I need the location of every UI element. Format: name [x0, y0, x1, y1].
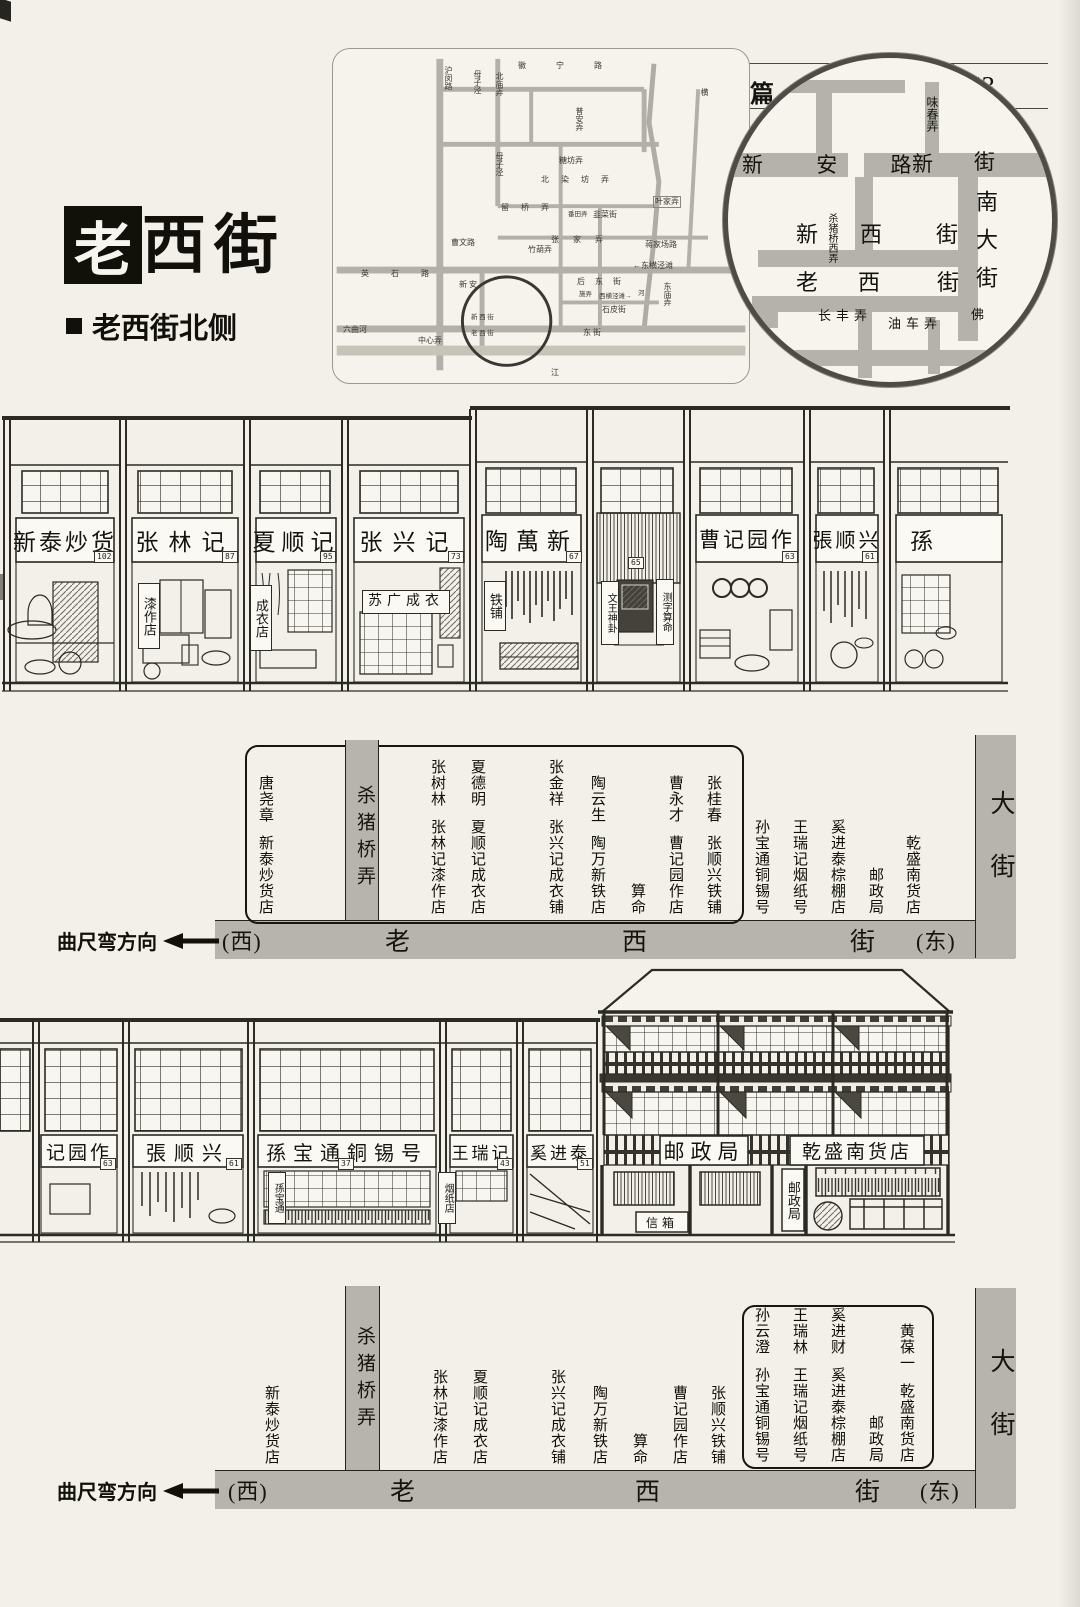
- shop-column: 张金祥张兴记成衣铺: [546, 759, 564, 915]
- house-number: 65: [628, 557, 644, 569]
- shop-board: 苏广成衣: [362, 590, 450, 614]
- shop-column: 夏德明夏顺记成衣店: [468, 759, 486, 915]
- shop-name: 夏顺记成衣店: [471, 1369, 487, 1465]
- shop-column: 陶万新铁店: [590, 1385, 608, 1465]
- shop-banner: 漆作店: [138, 583, 160, 649]
- direction-note: 曲尺弯方向: [57, 926, 219, 955]
- shop-column: 新泰炒货店: [262, 1385, 280, 1465]
- avenue-label: 大街: [982, 1348, 1018, 1474]
- shop-name: 张兴记成衣铺: [547, 819, 563, 915]
- street-char: 老: [385, 922, 411, 958]
- shop-column: 算命: [630, 1433, 648, 1465]
- shop-column: 张顺兴铁铺: [708, 1385, 726, 1465]
- road-label: 新 安 路: [742, 155, 936, 176]
- shop-name: 算命: [631, 1433, 647, 1465]
- shop-name: 孙宝通铜锡号: [753, 819, 769, 915]
- shop-name: 张兴记成衣铺: [549, 1369, 565, 1465]
- left-arrow-icon: [163, 933, 219, 949]
- street-label: 东庙弄: [663, 282, 671, 306]
- bullet-square-icon: [66, 318, 82, 334]
- street-label: 留 桥 弄: [501, 204, 554, 212]
- shop-column: 王瑞林王瑞记烟纸号: [790, 1307, 808, 1463]
- shop-banner: 成衣店: [250, 585, 272, 651]
- shop-name: 乾盛南货店: [898, 1383, 914, 1463]
- house-number: 43: [497, 1158, 513, 1170]
- magnifier-circle: 味春弄 新 安 路 新 街 南大街 新 杀猪桥西弄 西 街 老 西 街 长丰弄 …: [723, 53, 1057, 387]
- street-end-east: (东): [916, 924, 956, 956]
- road-label: 南大街: [974, 190, 996, 304]
- shop-column: 乾盛南货店: [903, 835, 921, 915]
- lane-label: 杀猪桥弄: [351, 1326, 378, 1434]
- street-label: 石皮街: [602, 306, 626, 314]
- shop-name: 张顺兴铁铺: [709, 1385, 725, 1465]
- road-label: 西: [858, 272, 880, 294]
- owner-name: 张树林: [429, 759, 445, 807]
- direction-text: 曲尺弯方向: [57, 926, 157, 955]
- road-label: 新: [796, 224, 818, 246]
- post-office-door-sign: 邮政局: [782, 1169, 804, 1231]
- road-label: 街: [936, 224, 958, 246]
- lane-label: 杀猪桥西弄: [826, 213, 836, 263]
- shop-column: 孙云澄孙宝通铜锡号: [752, 1307, 770, 1463]
- stall-sign: 测字算命: [656, 579, 674, 645]
- street-end-west: (西): [228, 1474, 268, 1506]
- house-number: 87: [222, 551, 238, 563]
- storefront-row-1: 新泰炒货 张林记 夏顺记 张兴记 陶萬新 曹记园作 張顺兴 孫 102 87 9…: [0, 405, 1080, 697]
- street-label: 中心弄: [418, 337, 442, 345]
- house-number: 95: [320, 551, 336, 563]
- house-number: 63: [100, 1158, 116, 1170]
- owner-name: 陶云生: [589, 775, 605, 823]
- house-number: 51: [577, 1158, 593, 1170]
- shop-column: 陶云生陶万新铁店: [588, 775, 606, 915]
- street-label: 番田弄: [568, 212, 588, 219]
- house-number: 102: [94, 551, 114, 563]
- street-band: [738, 312, 778, 328]
- street-label: 母子泾: [495, 152, 503, 176]
- street-label: 英 石 路: [361, 270, 439, 278]
- road-label: 老: [796, 272, 818, 294]
- road-label: 西: [860, 224, 882, 246]
- south-goods-sign: 乾盛南货店: [790, 1136, 924, 1165]
- street-char: 西: [622, 922, 648, 958]
- shop-column: 邮政局: [866, 867, 884, 915]
- scanned-book-page: { "header": { "section": "第二篇", "scroll_…: [0, 0, 1080, 1607]
- owner-name: 张金祥: [547, 759, 563, 807]
- shop-column: 曹永才曹记园作店: [666, 775, 684, 915]
- shop-name: 算命: [629, 883, 645, 915]
- street-label: 叶家弄: [653, 196, 681, 208]
- storefront-row-2: 记园作 張顺兴 孫宝通銅锡号 王瑞记 奚进泰 邮政局 乾盛南货店 信箱 邮政局 …: [0, 954, 1080, 1250]
- direction-text: 曲尺弯方向: [57, 1476, 157, 1505]
- shop-name: 奚进泰棕棚店: [829, 819, 845, 915]
- shop-column: 算命: [628, 883, 646, 915]
- title-rest: 西街: [142, 206, 286, 284]
- post-office-sign: 邮政局: [660, 1136, 748, 1165]
- shop-column: 唐尧章新泰炒货店: [256, 775, 274, 915]
- left-arrow-icon: [163, 1483, 219, 1499]
- street-label: 北 染 坊 弄: [541, 176, 614, 184]
- shop-column: 奚进财奚进泰棕棚店: [828, 1307, 846, 1463]
- shop-name: 张林记漆作店: [431, 1369, 447, 1465]
- street-label: 施弄: [579, 292, 592, 299]
- section-subtitle: 老西街北侧: [66, 305, 237, 347]
- title-boxed-char: 老: [64, 206, 142, 284]
- house-number: 63: [782, 551, 798, 563]
- street-char: 街: [855, 1472, 881, 1508]
- page-title: 老 西街: [64, 206, 286, 284]
- street-char: 西: [635, 1472, 661, 1508]
- shop-column: 王瑞记烟纸号: [790, 819, 808, 915]
- shop-name: 王瑞记烟纸号: [791, 819, 807, 915]
- house-number: 73: [448, 551, 464, 563]
- street-char: 老: [390, 1472, 416, 1508]
- street-label: 新 西 街: [471, 315, 494, 322]
- shop-column: 张林记漆作店: [430, 1369, 448, 1465]
- lane-label: 油车弄: [888, 317, 942, 330]
- street-label: 普安弄: [575, 107, 583, 131]
- shop-banner: 铁铺: [484, 581, 506, 631]
- street-label: 新 安: [459, 281, 477, 289]
- owner-name: 王瑞林: [791, 1307, 807, 1355]
- subtitle-text: 老西街北侧: [92, 305, 237, 347]
- road-label: 佛: [971, 308, 984, 321]
- street-label: 曹文路: [451, 239, 475, 247]
- street-band: [765, 80, 905, 93]
- shop-banner: 烟纸店: [438, 1172, 456, 1224]
- street-end-east: (东): [920, 1474, 960, 1506]
- owner-name: 孙云澄: [753, 1307, 769, 1355]
- street-label: 徽 宁 路: [518, 62, 616, 70]
- shop-name: 王瑞记烟纸号: [791, 1367, 807, 1463]
- street-label: 江: [551, 369, 559, 377]
- shop-column: 黄葆一乾盛南货店: [897, 1323, 915, 1463]
- shop-column: 张兴记成衣铺: [548, 1369, 566, 1465]
- street-end-west: (西): [222, 924, 262, 956]
- lane-label: 长丰弄: [818, 309, 872, 322]
- shop-name: 新泰炒货店: [263, 1385, 279, 1465]
- shop-name: 张林记漆作店: [429, 819, 445, 915]
- stall-sign: 文王神卦: [601, 581, 619, 645]
- shop-name: 邮政局: [867, 1415, 883, 1463]
- owner-name: 奚进财: [829, 1307, 845, 1355]
- house-number: 67: [566, 551, 582, 563]
- street-label: 母子泾: [473, 70, 481, 94]
- street-band: [758, 250, 958, 267]
- lane-label: 杀猪桥弄: [351, 785, 378, 893]
- shop-name: 乾盛南货店: [904, 835, 920, 915]
- direction-note: 曲尺弯方向: [57, 1476, 219, 1505]
- street-label: 北庙弄: [495, 72, 503, 96]
- street-label: 糖坊弄: [559, 157, 583, 165]
- street-label: 东 街: [583, 329, 601, 337]
- street-label: 横: [700, 88, 708, 96]
- scan-blemish: [0, 0, 11, 22]
- street-label: 韭菜街: [593, 211, 617, 219]
- street-diagram-north: 杀猪桥弄 大街 唐尧章新泰炒货店 张树林张林记漆作店 夏德明夏顺记成衣店 张金祥…: [0, 730, 1080, 958]
- street-label: 老 西 街: [471, 331, 494, 338]
- street-label: 竹葫弄: [528, 246, 552, 254]
- shop-column: 孙宝通铜锡号: [752, 819, 770, 915]
- street-label: 六曲河: [343, 326, 367, 334]
- owner-name: 张桂春: [705, 775, 721, 823]
- shop-name: 陶万新铁店: [591, 1385, 607, 1465]
- shop-column: 张桂春张顺兴铁铺: [704, 775, 722, 915]
- street-label: ←东横泾滩: [633, 262, 673, 270]
- avenue-label: 大街: [982, 790, 1018, 916]
- owner-name: 唐尧章: [257, 775, 273, 823]
- road-label: 新: [912, 154, 933, 175]
- shop-name: 张顺兴铁铺: [705, 835, 721, 915]
- owner-name: 黄葆一: [898, 1323, 914, 1371]
- owner-name: 曹永才: [667, 775, 683, 823]
- mailbox-sign: 信箱: [636, 1212, 688, 1232]
- shop-sign: 孫: [896, 515, 1016, 562]
- street-diagram-south: 杀猪桥弄 大街 新泰炒货店 张林记漆作店 夏顺记成衣店 张兴记成衣铺 陶万新铁店…: [0, 1278, 1080, 1508]
- street-label: 沪闵路: [444, 66, 452, 90]
- shop-banner: 孫宝通: [268, 1172, 286, 1224]
- house-number: 61: [862, 551, 878, 563]
- house-number: 61: [226, 1158, 242, 1170]
- shop-name: 曹记园作店: [667, 835, 683, 915]
- street-label: 后 东 街: [577, 278, 625, 286]
- street-label: 蒋家场路: [645, 241, 677, 249]
- street-label: 河: [638, 291, 645, 298]
- shop-name: 奚进泰棕棚店: [829, 1367, 845, 1463]
- lane-label: 味春弄: [926, 96, 938, 132]
- shop-column: 张树林张林记漆作店: [428, 759, 446, 915]
- street-char: 街: [850, 922, 876, 958]
- shop-column: 曹记园作店: [670, 1385, 688, 1465]
- street-label: 西横泾滩→: [599, 294, 632, 301]
- shop-name: 邮政局: [867, 867, 883, 915]
- shop-column: 夏顺记成衣店: [470, 1369, 488, 1465]
- shop-name: 曹记园作店: [671, 1385, 687, 1465]
- storefront-row-2-drawing: [0, 954, 1080, 1250]
- road-label: 街: [974, 152, 995, 173]
- minimap-streets: [333, 49, 749, 383]
- street-band: [816, 92, 832, 154]
- road-label: 街: [937, 272, 959, 294]
- location-minimap: 沪闵路 母子泾 北庙弄 徽 宁 路 普安弄 母子泾 糖坊弄 北 染 坊 弄 叶家…: [332, 48, 750, 384]
- shop-name: 陶万新铁店: [589, 835, 605, 915]
- shop-column: 邮政局: [866, 1415, 884, 1463]
- street-bar: [215, 1470, 1015, 1509]
- shop-name: 新泰炒货店: [257, 835, 273, 915]
- shop-name: 孙宝通铜锡号: [753, 1367, 769, 1463]
- shop-name: 夏顺记成衣店: [469, 819, 485, 915]
- house-number: 37: [338, 1158, 354, 1170]
- owner-name: 夏德明: [469, 759, 485, 807]
- street-label: 张 家 弄: [551, 236, 609, 244]
- street-band: [748, 350, 1038, 366]
- shop-column: 奚进泰棕棚店: [828, 819, 846, 915]
